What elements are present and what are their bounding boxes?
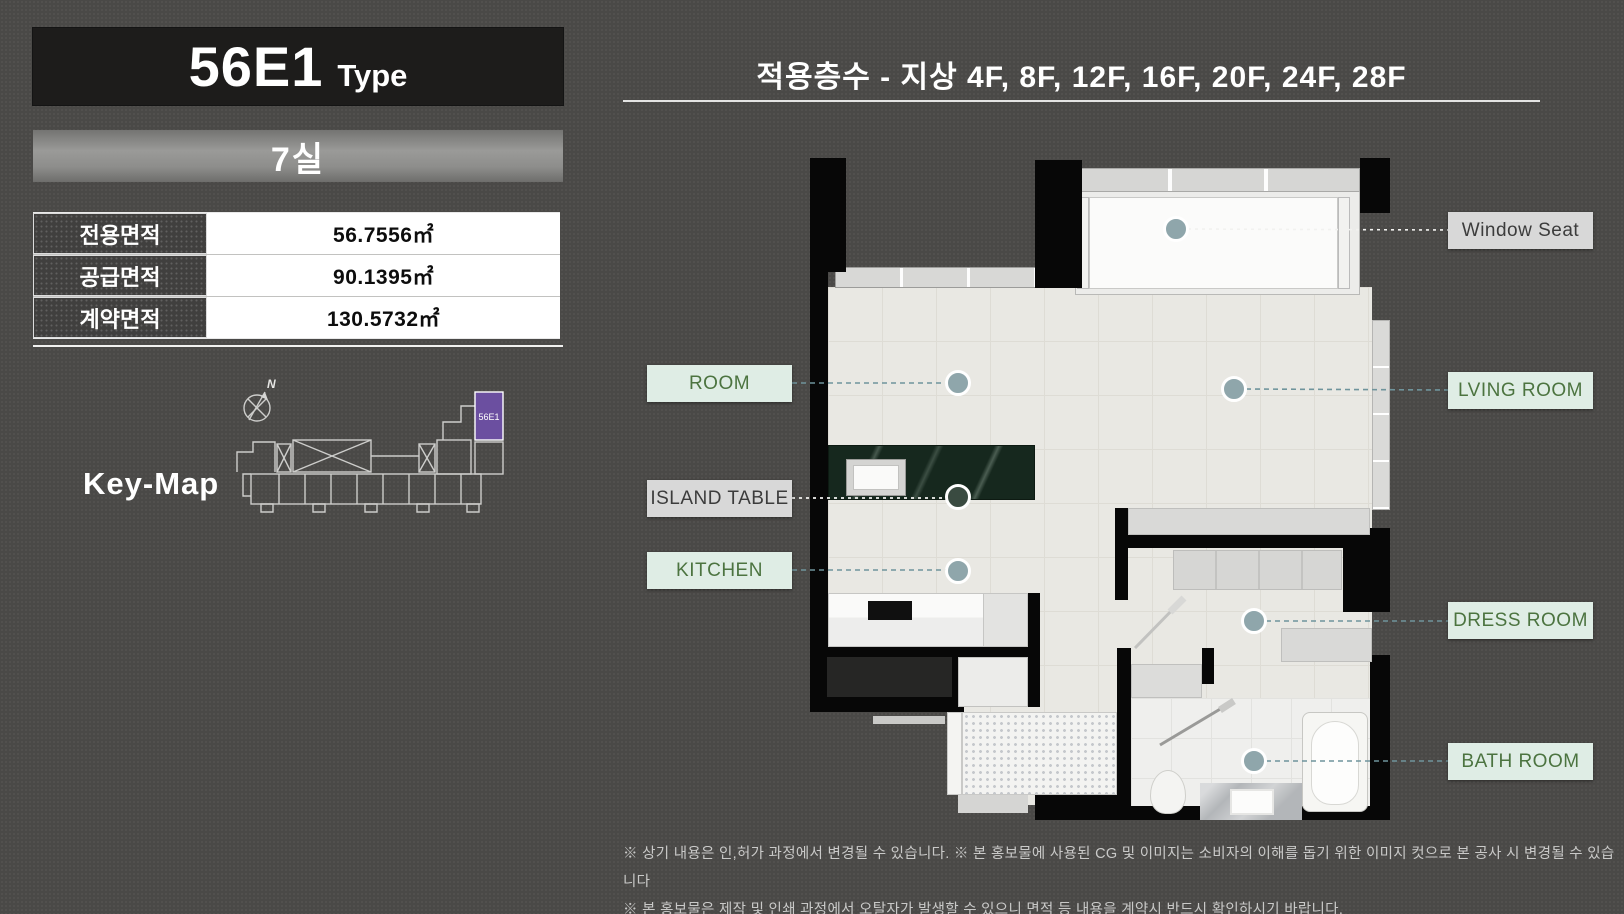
dress-room-closet (1281, 628, 1372, 662)
area-table: 전용면적 56.7556㎡ 공급면적 90.1395㎡ 계약면적 130.573… (33, 212, 560, 339)
bathroom-sink (1230, 789, 1274, 815)
marker-dot-island (945, 484, 971, 510)
keymap-highlight-unit: 56E1 (475, 392, 503, 440)
wall (1343, 528, 1390, 612)
area-label-supply: 공급면적 (33, 255, 207, 296)
window-frame (1075, 168, 1360, 192)
marker-dot-room (945, 370, 971, 396)
cooktop (868, 601, 912, 620)
label-kitchen: KITCHEN (647, 552, 792, 589)
table-row: 전용면적 56.7556㎡ (33, 213, 560, 255)
island-sink-basin (853, 465, 899, 490)
built-in-closet (1372, 320, 1390, 510)
label-window-seat: Window Seat (1448, 212, 1593, 249)
room-window (835, 267, 1037, 288)
wall (1115, 535, 1345, 548)
disclaimer: ※ 상기 내용은 인,허가 과정에서 변경될 수 있습니다. ※ 본 홍보물에 … (623, 840, 1623, 914)
label-island-table: ISLAND TABLE (647, 480, 792, 517)
marker-dot-living (1221, 376, 1247, 402)
toilet (1150, 770, 1186, 814)
compass-icon: N (244, 377, 276, 421)
divider-line (33, 345, 563, 347)
wall (810, 697, 962, 712)
bathtub-basin (1311, 721, 1359, 805)
keymap-highlight-label: 56E1 (478, 412, 499, 422)
keymap-building-outline (237, 406, 503, 512)
label-living-room: LVING ROOM (1448, 372, 1593, 409)
unit-type-title: 56E1 Type (33, 28, 563, 105)
wall (1035, 793, 1117, 820)
floor-plan (810, 155, 1390, 820)
wall (1370, 655, 1390, 820)
keymap-diagram: N (223, 372, 529, 537)
marker-dot-window-seat (1163, 216, 1189, 242)
dress-room-closet (1173, 550, 1342, 590)
table-row: 공급면적 90.1395㎡ (33, 255, 560, 297)
wall (1117, 648, 1131, 820)
label-bath-room: BATH ROOM (1448, 743, 1593, 780)
unit-type-code: 56E1 (189, 28, 324, 105)
compass-north-label: N (267, 377, 276, 391)
island-sink (846, 459, 906, 496)
marker-dot-dress (1241, 608, 1267, 634)
wardrobe (1128, 508, 1370, 535)
area-label-exclusive: 전용면적 (33, 213, 207, 254)
window-seat-cushion (1089, 197, 1338, 289)
wall (1035, 160, 1082, 288)
brochure-page: 56E1 Type 7실 전용면적 56.7556㎡ 공급면적 90.1395㎡… (0, 0, 1624, 914)
wall (1202, 648, 1214, 684)
label-dress-room: DRESS ROOM (1448, 602, 1593, 639)
window-frame-post (1338, 197, 1350, 289)
keymap-title: Key-Map (83, 466, 219, 502)
wall (1028, 593, 1040, 707)
header-underline (623, 100, 1540, 102)
utility-room (827, 657, 952, 697)
unit-type-word: Type (337, 58, 407, 94)
wall (1115, 508, 1128, 600)
label-room: ROOM (647, 365, 792, 402)
area-value-contract: 130.5732㎡ (207, 297, 560, 338)
entry-cabinet (958, 657, 1028, 707)
bathtub (1302, 712, 1368, 812)
area-label-contract: 계약면적 (33, 297, 207, 338)
area-value-supply: 90.1395㎡ (207, 255, 560, 296)
disclaimer-line: ※ 상기 내용은 인,허가 과정에서 변경될 수 있습니다. ※ 본 홍보물에 … (623, 840, 1623, 896)
wall (810, 158, 846, 272)
table-row: 계약면적 130.5732㎡ (33, 297, 560, 338)
floors-header: 적용층수 - 지상 4F, 8F, 12F, 16F, 20F, 24F, 28… (623, 52, 1540, 96)
disclaimer-line: ※ 본 홍보물은 제작 및 인쇄 과정에서 오탈자가 발생할 수 있으니 면적 … (623, 896, 1623, 914)
plan-outside-corner (828, 712, 960, 805)
marker-dot-bath (1241, 748, 1267, 774)
entrance-door (947, 712, 962, 795)
marker-dot-kitchen (945, 558, 971, 584)
area-value-exclusive: 56.7556㎡ (207, 213, 560, 254)
shoe-cabinet (1131, 664, 1202, 698)
entrance-threshold (958, 795, 1028, 813)
kitchen-counter-end (983, 593, 1028, 647)
balcony-step (873, 716, 945, 724)
island-table (828, 445, 1035, 500)
wall (1360, 158, 1390, 213)
unit-count-banner: 7실 (33, 130, 563, 182)
entrance-tile-floor (962, 712, 1117, 795)
